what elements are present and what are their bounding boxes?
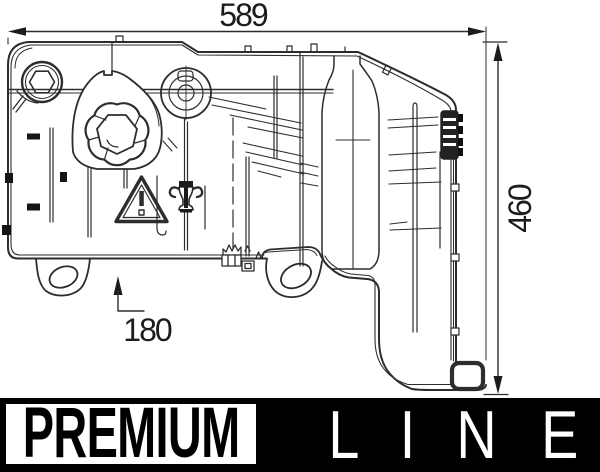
hex-plug <box>13 62 62 112</box>
dimension-width <box>8 27 486 360</box>
tank-outline <box>8 36 456 362</box>
premium-label: PREMIUM <box>23 405 240 463</box>
line-label-box: L I N E <box>261 398 600 472</box>
screenshot-root: 589 460 180 PREMIUM L I N E <box>0 0 600 472</box>
rubber-foot-block <box>452 363 483 389</box>
concentric-port <box>161 66 211 120</box>
connector-block <box>441 111 463 159</box>
premium-line-banner: PREMIUM L I N E <box>0 398 600 472</box>
dimension-offset <box>114 276 145 311</box>
width-dimension-label: 589 <box>219 0 268 33</box>
premium-label-box: PREMIUM <box>1 399 261 469</box>
line-letter-i: I <box>400 400 416 470</box>
line-letter-n: N <box>457 400 497 470</box>
line-letter-e: E <box>541 400 578 470</box>
coolant-symbol-icon <box>170 181 202 213</box>
edge-weld-marks <box>2 134 67 236</box>
line-letter-l: L <box>328 400 359 470</box>
mounting-foot-right <box>262 247 322 297</box>
offset-dimension-label: 180 <box>123 312 172 348</box>
mounting-foot-left <box>36 259 90 296</box>
filler-cap-knob <box>86 103 149 165</box>
expansion-tank-technical-drawing: 589 460 180 <box>0 0 600 398</box>
height-dimension-label: 460 <box>502 184 538 233</box>
bottle-recess <box>322 56 379 269</box>
